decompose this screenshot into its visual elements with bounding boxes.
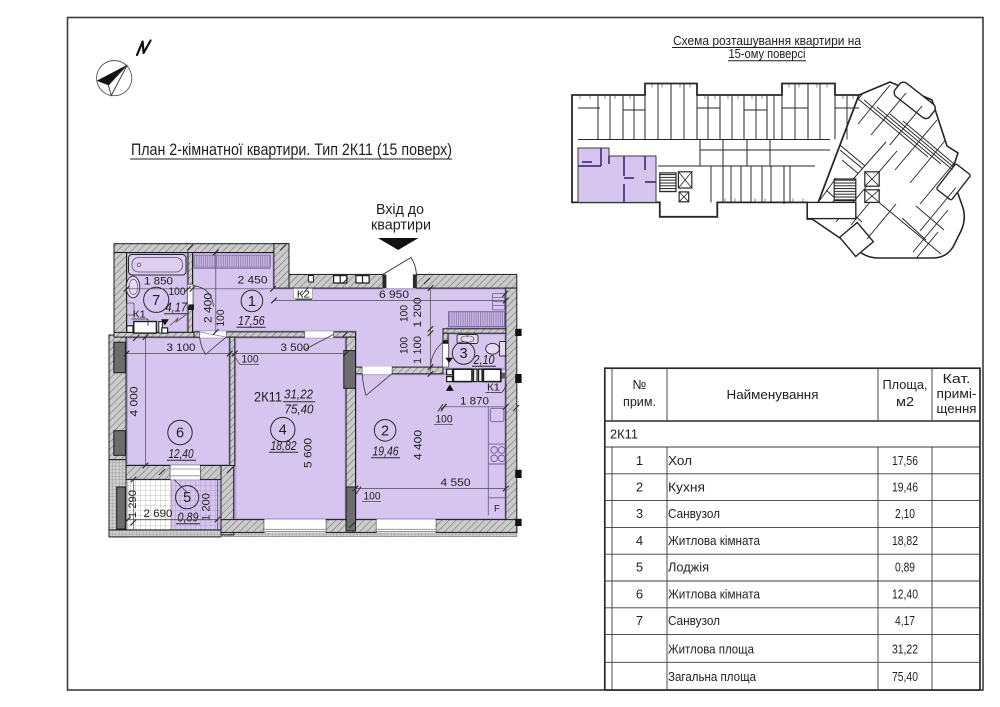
svg-text:Лоджія: Лоджія bbox=[668, 560, 709, 575]
svg-text:12,40: 12,40 bbox=[169, 447, 194, 461]
svg-text:6 950: 6 950 bbox=[379, 289, 409, 301]
svg-text:4: 4 bbox=[279, 423, 287, 439]
svg-text:Кухня: Кухня bbox=[668, 480, 705, 495]
svg-text:100: 100 bbox=[364, 491, 381, 503]
svg-text:4: 4 bbox=[636, 533, 643, 548]
svg-text:Санвузол: Санвузол bbox=[668, 506, 720, 521]
svg-text:Загальна площа: Загальна площа bbox=[668, 669, 757, 684]
svg-text:1 290: 1 290 bbox=[127, 490, 139, 518]
svg-text:2 400: 2 400 bbox=[203, 293, 215, 323]
svg-text:2: 2 bbox=[381, 423, 389, 439]
svg-text:6: 6 bbox=[176, 426, 184, 442]
svg-text:№: № bbox=[633, 377, 647, 392]
svg-text:17,56: 17,56 bbox=[892, 453, 918, 468]
svg-text:1 200: 1 200 bbox=[412, 298, 424, 328]
svg-text:17,56: 17,56 bbox=[238, 314, 265, 328]
svg-text:Кат.: Кат. bbox=[943, 371, 971, 386]
svg-text:6: 6 bbox=[636, 586, 643, 601]
svg-text:2,10: 2,10 bbox=[895, 506, 915, 521]
svg-text:5 600: 5 600 bbox=[303, 438, 315, 468]
svg-text:75,40: 75,40 bbox=[892, 669, 918, 684]
svg-text:31,22: 31,22 bbox=[284, 388, 313, 402]
svg-text:19,46: 19,46 bbox=[373, 445, 399, 459]
svg-text:4 400: 4 400 bbox=[413, 430, 425, 460]
svg-text:К1: К1 bbox=[133, 308, 146, 320]
svg-text:5: 5 bbox=[636, 560, 643, 575]
svg-text:2,10: 2,10 bbox=[473, 353, 495, 367]
svg-text:1: 1 bbox=[248, 294, 256, 310]
svg-text:4 550: 4 550 bbox=[441, 477, 471, 489]
svg-text:Житлова кімната: Житлова кімната bbox=[668, 533, 761, 548]
svg-text:2 690: 2 690 bbox=[144, 508, 173, 520]
svg-text:15-ому поверсі: 15-ому поверсі bbox=[729, 46, 806, 61]
svg-text:3: 3 bbox=[460, 346, 468, 362]
svg-text:18,82: 18,82 bbox=[892, 533, 918, 548]
svg-text:К2: К2 bbox=[297, 289, 310, 301]
svg-text:примі-: примі- bbox=[937, 386, 977, 401]
svg-text:щення: щення bbox=[937, 401, 977, 416]
svg-text:100: 100 bbox=[215, 310, 227, 327]
svg-text:7: 7 bbox=[152, 293, 160, 309]
svg-text:квартири: квартири bbox=[371, 217, 431, 234]
svg-text:3 500: 3 500 bbox=[281, 342, 310, 354]
svg-text:План 2-кімнатної квартири. Тип: План 2-кімнатної квартири. Тип 2К11 (15 … bbox=[131, 141, 452, 159]
svg-text:0,89: 0,89 bbox=[895, 560, 915, 575]
svg-text:F: F bbox=[494, 504, 500, 515]
svg-text:Санвузол: Санвузол bbox=[668, 613, 720, 628]
svg-text:прим.: прим. bbox=[623, 394, 656, 409]
svg-text:Площа,: Площа, bbox=[883, 377, 928, 392]
svg-text:Житлова площа: Житлова площа bbox=[668, 642, 755, 657]
svg-text:1 100: 1 100 bbox=[412, 336, 424, 364]
svg-text:1: 1 bbox=[636, 453, 643, 468]
svg-text:5: 5 bbox=[183, 490, 191, 506]
svg-text:12,40: 12,40 bbox=[892, 586, 918, 601]
svg-text:Вхід до: Вхід до bbox=[376, 201, 424, 218]
svg-text:100: 100 bbox=[436, 414, 453, 426]
svg-text:31,22: 31,22 bbox=[892, 642, 918, 657]
svg-text:100: 100 bbox=[399, 305, 411, 322]
svg-text:4,17: 4,17 bbox=[895, 613, 915, 628]
svg-text:2К11: 2К11 bbox=[254, 390, 282, 405]
svg-text:Хол: Хол bbox=[668, 453, 692, 468]
svg-text:19,46: 19,46 bbox=[892, 480, 918, 495]
svg-text:м2: м2 bbox=[896, 394, 914, 409]
svg-text:2К11: 2К11 bbox=[610, 427, 638, 442]
svg-text:1 870: 1 870 bbox=[460, 396, 489, 408]
svg-text:3: 3 bbox=[636, 506, 643, 521]
svg-text:0,89: 0,89 bbox=[178, 511, 199, 525]
svg-text:К1: К1 bbox=[487, 382, 500, 394]
svg-text:4 000: 4 000 bbox=[129, 387, 141, 417]
svg-text:75,40: 75,40 bbox=[285, 403, 314, 417]
svg-text:Житлова кімната: Житлова кімната bbox=[668, 586, 761, 601]
svg-text:3 100: 3 100 bbox=[167, 342, 196, 354]
svg-text:1 200: 1 200 bbox=[201, 493, 213, 521]
svg-text:Найменування: Найменування bbox=[727, 387, 819, 402]
svg-text:2 450: 2 450 bbox=[238, 274, 268, 286]
svg-text:100: 100 bbox=[169, 286, 186, 298]
svg-text:100: 100 bbox=[242, 354, 259, 366]
svg-text:100: 100 bbox=[399, 337, 411, 354]
svg-text:7: 7 bbox=[636, 613, 643, 628]
svg-text:18,82: 18,82 bbox=[271, 439, 297, 453]
svg-text:2: 2 bbox=[636, 480, 643, 495]
svg-text:4,17: 4,17 bbox=[166, 301, 188, 315]
